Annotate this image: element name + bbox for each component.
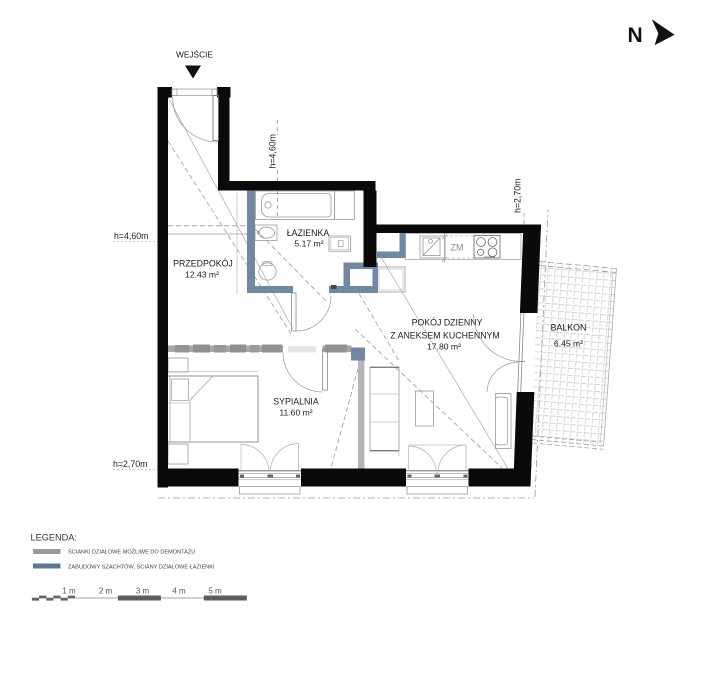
svg-text:BALKON: BALKON — [551, 323, 587, 333]
svg-text:WEJŚCIE: WEJŚCIE — [176, 49, 213, 60]
svg-text:12.43 m²: 12.43 m² — [185, 269, 219, 279]
svg-text:N: N — [628, 24, 643, 47]
svg-text:Z ANEKSEM KUCHENNYM: Z ANEKSEM KUCHENNYM — [390, 330, 500, 340]
svg-text:h=4,60m: h=4,60m — [114, 231, 148, 241]
svg-text:ŚCIANKI DZIAŁOWE MOŻLIWE DO DE: ŚCIANKI DZIAŁOWE MOŻLIWE DO DEMONTAŻU — [68, 548, 195, 556]
svg-text:ŁAZIENKA: ŁAZIENKA — [287, 228, 330, 238]
svg-text:ZM: ZM — [451, 243, 464, 253]
svg-text:ZABUDOWY SZACHTÓW, ŚCIANY DZIA: ZABUDOWY SZACHTÓW, ŚCIANY DZIAŁOWE ŁAZIE… — [68, 563, 215, 571]
svg-text:h=2,70m: h=2,70m — [113, 459, 147, 469]
svg-text:4 m: 4 m — [172, 587, 186, 596]
svg-text:5.17 m²: 5.17 m² — [294, 238, 323, 248]
svg-text:6.45 m²: 6.45 m² — [554, 338, 583, 348]
svg-text:h=4,60m: h=4,60m — [268, 134, 278, 168]
svg-text:2 m: 2 m — [99, 587, 113, 596]
svg-text:LEGENDA:: LEGENDA: — [31, 532, 77, 542]
svg-text:1 m: 1 m — [62, 587, 76, 596]
svg-text:3 m: 3 m — [136, 587, 150, 596]
svg-text:17.80 m²: 17.80 m² — [427, 342, 461, 352]
svg-text:5 m: 5 m — [208, 587, 222, 596]
svg-text:SYPIALNIA: SYPIALNIA — [273, 396, 319, 406]
svg-text:h=2,70m: h=2,70m — [513, 179, 523, 213]
svg-text:11.60 m²: 11.60 m² — [279, 407, 312, 417]
svg-text:POKÓJ DZIENNY: POKÓJ DZIENNY — [412, 317, 483, 327]
svg-text:PRZEDPOKÓJ: PRZEDPOKÓJ — [173, 258, 233, 268]
